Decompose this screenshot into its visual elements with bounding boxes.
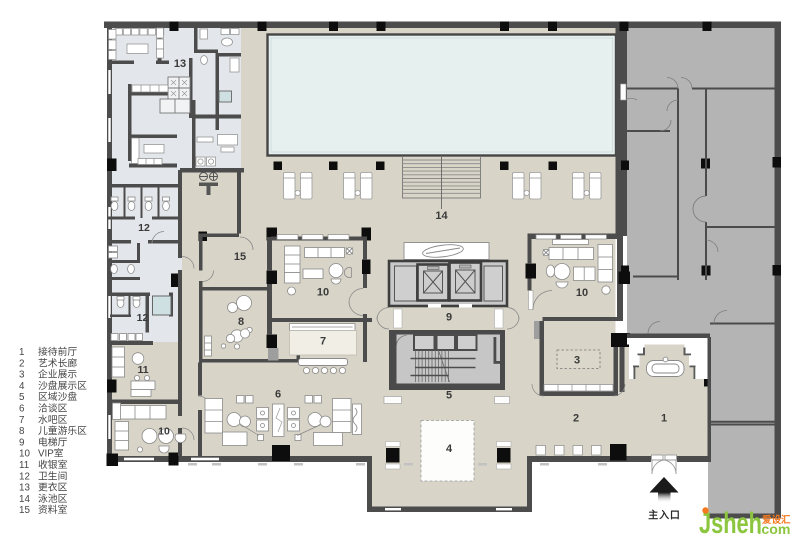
- svg-text:更衣区: 更衣区: [38, 481, 68, 494]
- svg-text:12: 12: [137, 312, 149, 324]
- svg-text:14: 14: [19, 494, 30, 505]
- svg-text:2: 2: [19, 358, 24, 369]
- svg-text:5: 5: [19, 392, 25, 403]
- svg-text:15: 15: [234, 251, 246, 263]
- svg-text:11: 11: [137, 364, 148, 376]
- svg-text:收银室: 收银室: [38, 458, 68, 471]
- svg-text:接待前厅: 接待前厅: [38, 345, 77, 358]
- svg-text:9: 9: [19, 437, 24, 448]
- svg-text:4: 4: [19, 381, 25, 392]
- svg-text:7: 7: [320, 336, 326, 348]
- svg-text:泳池区: 泳池区: [38, 492, 68, 505]
- svg-text:2: 2: [573, 413, 579, 425]
- svg-text:12: 12: [19, 471, 30, 482]
- svg-text:主入口: 主入口: [648, 509, 680, 522]
- svg-text:7: 7: [19, 415, 24, 426]
- svg-text:3: 3: [19, 370, 25, 381]
- svg-text:10: 10: [576, 287, 588, 299]
- svg-text:水吧区: 水吧区: [38, 414, 68, 426]
- svg-text:4: 4: [446, 443, 453, 455]
- svg-text:1: 1: [661, 413, 667, 425]
- svg-text:艺术长廊: 艺术长廊: [38, 356, 77, 369]
- svg-text:9: 9: [446, 312, 452, 324]
- svg-text:10: 10: [19, 449, 30, 460]
- svg-text:区域沙盘: 区域沙盘: [38, 390, 77, 403]
- svg-text:资料室: 资料室: [38, 503, 68, 516]
- svg-text:10: 10: [317, 287, 329, 299]
- svg-text:5: 5: [446, 390, 452, 402]
- svg-text:儿童游乐区: 儿童游乐区: [38, 424, 87, 437]
- svg-text:电梯厅: 电梯厅: [38, 435, 68, 448]
- svg-text:6: 6: [275, 389, 281, 401]
- svg-text:13: 13: [19, 483, 30, 494]
- svg-text:8: 8: [238, 316, 244, 328]
- svg-text:1: 1: [19, 347, 24, 358]
- svg-text:VIP室: VIP室: [38, 447, 64, 460]
- svg-text:13: 13: [174, 58, 186, 70]
- svg-text:15: 15: [19, 505, 30, 516]
- svg-text:沙盘展示区: 沙盘展示区: [38, 379, 87, 392]
- svg-text:11: 11: [19, 460, 29, 471]
- svg-text:14: 14: [435, 210, 448, 222]
- svg-text:12: 12: [138, 222, 150, 234]
- svg-text:.com: .com: [758, 522, 791, 537]
- svg-text:3: 3: [574, 355, 580, 367]
- svg-text:洽谈区: 洽谈区: [38, 402, 68, 415]
- svg-text:6: 6: [19, 404, 25, 415]
- svg-text:企业展示: 企业展示: [38, 368, 77, 381]
- svg-text:10: 10: [158, 426, 170, 438]
- svg-text:卫生间: 卫生间: [38, 469, 67, 482]
- svg-text:8: 8: [19, 426, 25, 437]
